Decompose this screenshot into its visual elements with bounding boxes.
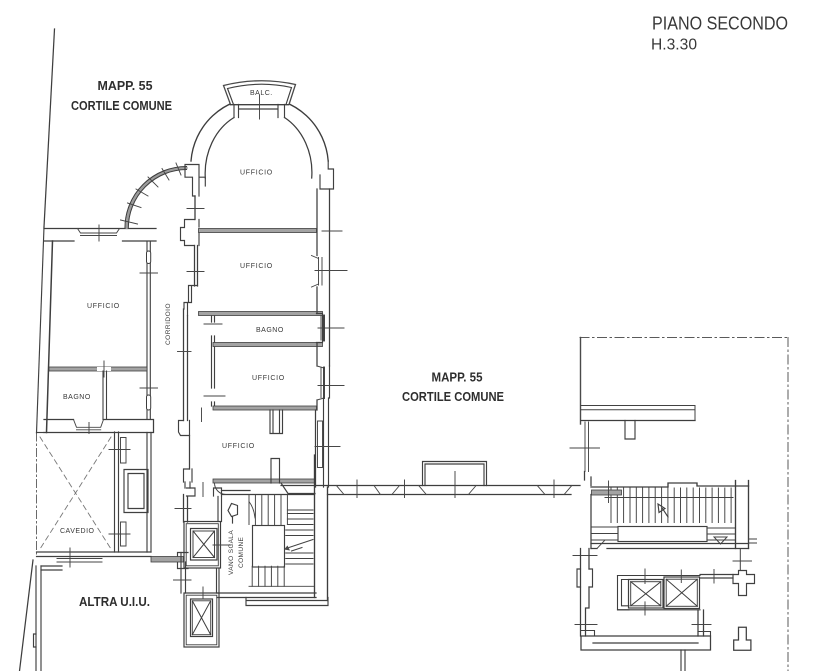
svg-text:UFFICIO: UFFICIO: [87, 303, 120, 310]
svg-text:CORRIDOIO: CORRIDOIO: [165, 303, 172, 345]
svg-text:UFFICIO: UFFICIO: [240, 263, 273, 270]
svg-text:CORTILE COMUNE: CORTILE COMUNE: [71, 99, 172, 113]
svg-text:CORTILE COMUNE: CORTILE COMUNE: [402, 390, 504, 404]
svg-text:ALTRA U.I.U.: ALTRA U.I.U.: [79, 594, 150, 609]
svg-text:BALC.: BALC.: [250, 90, 273, 97]
svg-text:CAVEDIO: CAVEDIO: [60, 528, 95, 535]
svg-text:MAPP. 55: MAPP. 55: [98, 79, 153, 93]
svg-text:COMUNE: COMUNE: [238, 536, 245, 568]
svg-text:VANO SCALA: VANO SCALA: [228, 530, 235, 575]
svg-text:BAGNO: BAGNO: [63, 394, 91, 401]
svg-text:UFFICIO: UFFICIO: [222, 443, 255, 450]
svg-text:UFFICIO: UFFICIO: [240, 170, 273, 177]
svg-text:H.3.30: H.3.30: [651, 37, 697, 54]
svg-text:UFFICIO: UFFICIO: [252, 375, 285, 382]
svg-text:PIANO SECONDO: PIANO SECONDO: [652, 14, 788, 34]
svg-text:BAGNO: BAGNO: [256, 327, 284, 334]
svg-text:MAPP. 55: MAPP. 55: [432, 371, 483, 385]
